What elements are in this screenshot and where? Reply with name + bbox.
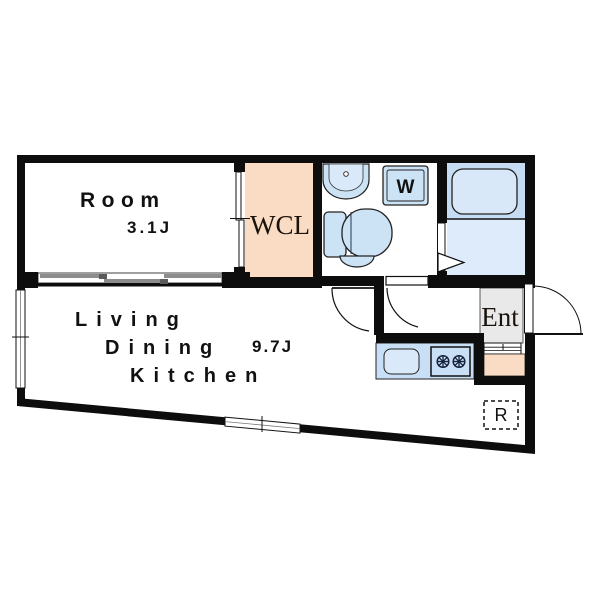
wall-segment xyxy=(313,163,322,288)
kitchen-sink xyxy=(384,349,419,374)
wall-segment xyxy=(245,277,313,288)
wall-segment xyxy=(17,155,535,163)
wall-segment xyxy=(17,272,38,288)
wall-segment xyxy=(437,271,447,288)
floorplan-canvas: W R xyxy=(0,0,600,600)
room-label: Room xyxy=(80,189,166,212)
wall-segment xyxy=(376,333,483,343)
wall-segment xyxy=(479,376,530,385)
entrance-label: Ent xyxy=(481,302,519,332)
refrigerator-label: R xyxy=(495,405,508,425)
ldk-label-kitchen: Kitchen xyxy=(130,365,266,387)
bathtub xyxy=(452,169,517,214)
wall-segment xyxy=(525,155,535,283)
room-sliding-window xyxy=(38,273,222,284)
wall-segment xyxy=(234,163,245,172)
wall-segment xyxy=(313,276,375,286)
burner-icon xyxy=(453,355,466,368)
wall-segment xyxy=(38,283,222,287)
refrigerator-space: R xyxy=(484,401,518,429)
wall-segment xyxy=(437,163,447,223)
room-area-label: 3.1J xyxy=(127,218,172,237)
wall-segment xyxy=(525,333,535,450)
ldk-label-living: Living xyxy=(75,309,188,331)
washroom-sink xyxy=(323,164,369,199)
wall-segment xyxy=(374,276,384,335)
wall-segment xyxy=(17,155,25,290)
burner-icon xyxy=(437,355,450,368)
entrance-closet xyxy=(484,354,525,376)
ldk-area-label: 9.7J xyxy=(252,337,293,356)
washer-label: W xyxy=(397,177,415,198)
entrance-step xyxy=(484,343,521,354)
washing-machine: W xyxy=(383,166,428,205)
faucet-dot-icon xyxy=(344,172,349,177)
ldk-label-dining: Dining xyxy=(105,337,221,359)
bathroom-lower-floor xyxy=(447,219,525,275)
floorplan-svg: W R xyxy=(0,0,600,600)
wcl-label: WCL xyxy=(250,210,310,240)
